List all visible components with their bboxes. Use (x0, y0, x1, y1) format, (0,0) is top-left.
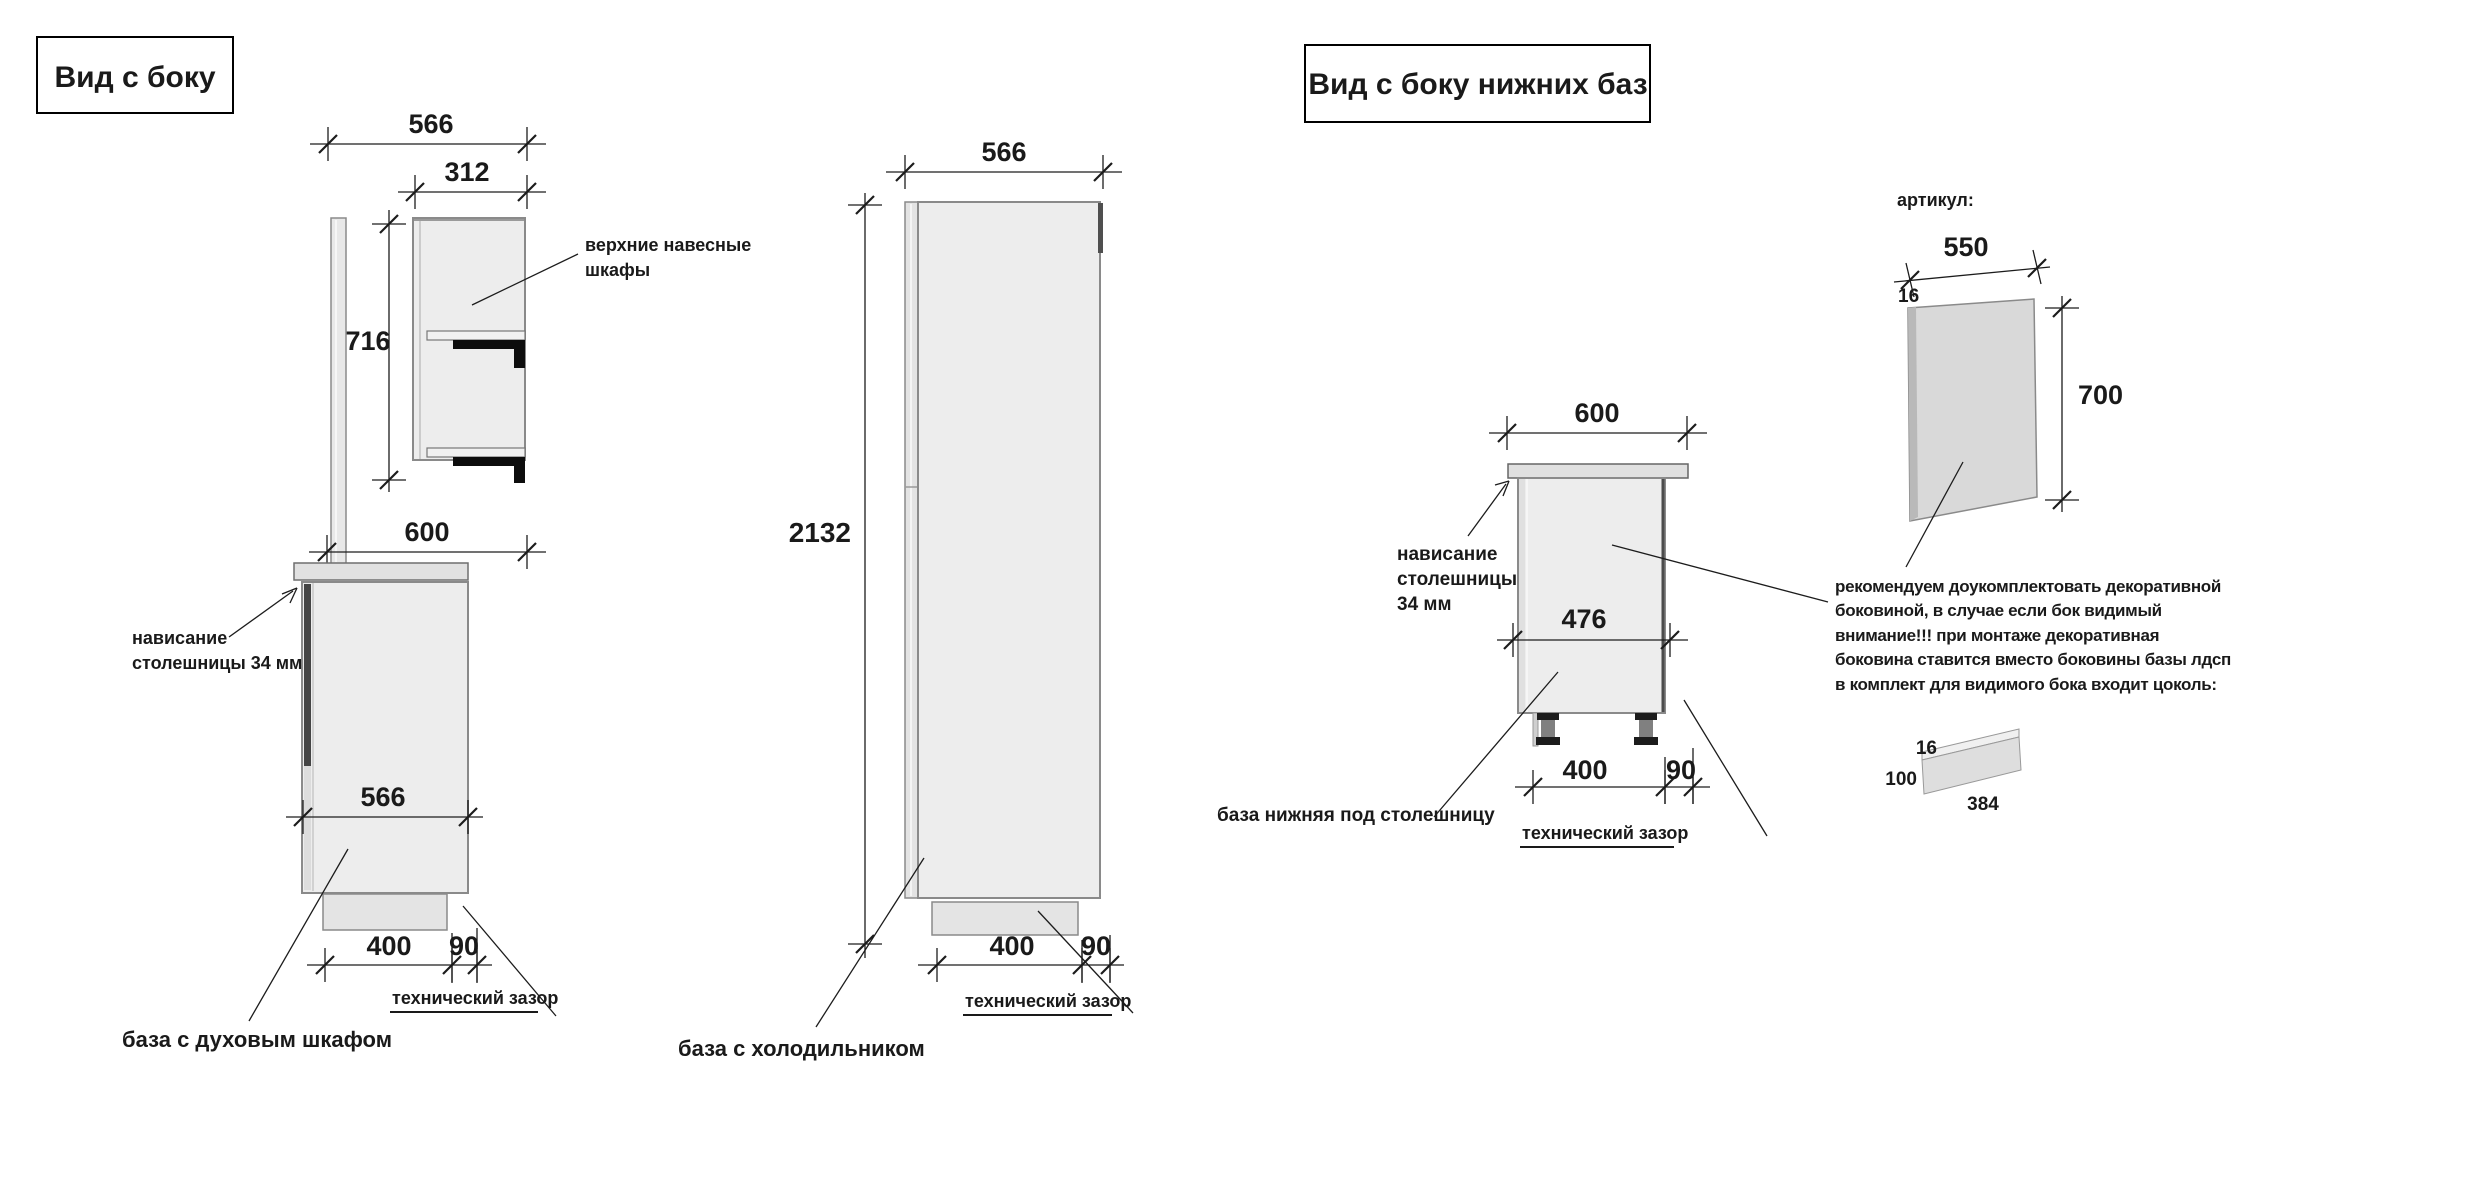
left-plinth (323, 894, 447, 930)
middle-caption: база с холодильником (678, 1036, 925, 1061)
left-wall-shelf-1 (427, 331, 525, 340)
left-dim-countertop-value: 600 (404, 517, 449, 547)
note-line2: боковиной, в случае если бок видимый (1835, 601, 2162, 620)
right-cabinet (1518, 478, 1665, 713)
plinth-dim-height-value: 100 (1885, 769, 1917, 790)
left-dim-upper-depth: 312 (398, 157, 546, 209)
right-tech-gap-text: технический зазор (1522, 823, 1688, 843)
right-view-title: Вид с боку нижних баз (1308, 68, 1647, 101)
right-dim-plinth-value: 400 (1562, 755, 1607, 785)
right-dim-inner-depth-value: 476 (1561, 604, 1606, 634)
right-overhang-line3: 34 мм (1397, 594, 1452, 615)
left-overhang-line2: столешницы 34 мм (132, 653, 302, 673)
left-base-cabinet (302, 582, 468, 893)
middle-dim-top-width: 566 (886, 137, 1122, 189)
middle-dim-top-width-value: 566 (981, 137, 1026, 167)
left-wall-cabinets-label-line1: верхние навесные (585, 235, 751, 255)
right-caption-group: база нижняя под столешницу (1217, 672, 1558, 826)
middle-cabinet (905, 202, 1103, 898)
left-shelf-bracket-1 (453, 340, 525, 349)
left-dim-upper-depth-value: 312 (444, 157, 489, 187)
panel-dim-width-value: 550 (1943, 232, 1988, 262)
left-caption: база с духовым шкафом (122, 1027, 392, 1052)
middle-dim-plinth-value: 400 (989, 931, 1034, 961)
sku-label: артикул: (1897, 190, 1974, 210)
left-view-title: Вид с боку (54, 61, 215, 94)
plinth-dim-thickness-value: 16 (1916, 738, 1937, 759)
panel-dim-height-value: 700 (2078, 380, 2123, 410)
left-dim-gap-value: 90 (449, 931, 479, 961)
left-dim-top-width: 566 (310, 109, 546, 161)
right-countertop (1508, 464, 1688, 478)
left-dim-plinth-value: 400 (366, 931, 411, 961)
middle-dim-gap-value: 90 (1081, 931, 1111, 961)
right-caption: база нижняя под столешницу (1217, 805, 1495, 826)
right-cabinet-legs (1533, 713, 1658, 746)
right-overhang-line1: нависание (1397, 544, 1498, 565)
middle-dim-plinth-gap: 400 90 (918, 931, 1124, 983)
left-dim-upper-height-value: 716 (345, 326, 390, 356)
left-wall-cabinets-label-line2: шкафы (585, 260, 650, 280)
plinth-dim-length-value: 384 (1967, 794, 1999, 815)
panel-dim-height: 700 (2045, 296, 2123, 512)
right-overhang-line2: столешницы (1397, 569, 1517, 590)
left-dim-base-depth-value: 566 (360, 782, 405, 812)
middle-dim-height: 2132 (789, 193, 882, 958)
left-tall-panel (331, 218, 346, 564)
right-dim-top-width-value: 600 (1574, 398, 1619, 428)
left-dim-upper-height: 716 (345, 210, 406, 492)
plinth-detail: 16 100 384 (1885, 729, 2021, 815)
warning-line1: внимание!!! при монтаже декоративная (1835, 626, 2159, 645)
decorative-side-panel (1908, 299, 2037, 521)
right-dim-gap-value: 90 (1666, 755, 1696, 785)
right-view-title-box: Вид с боку нижних баз (1305, 45, 1650, 122)
note-line3: в комплект для видимого бока входит цоко… (1835, 675, 2217, 694)
right-view: Вид с боку нижних баз 600 476 (1217, 45, 1828, 847)
note-line1: рекомендуем доукомплектовать декоративно… (1835, 577, 2221, 596)
left-tech-gap-text: технический зазор (392, 988, 558, 1008)
drawing-canvas: Вид с боку 566 312 (0, 0, 2484, 1198)
drawing-page: Вид с боку 566 312 (0, 0, 2484, 1198)
panel-note-block: рекомендуем доукомплектовать декоративно… (1835, 577, 2231, 694)
left-view-title-box: Вид с боку (37, 37, 233, 113)
side-panel-detail: артикул: 550 16 700 рекомендуем доукомпл… (1835, 190, 2231, 815)
left-wall-shelf-2 (427, 448, 525, 457)
panel-dim-thickness-value: 16 (1898, 286, 1919, 307)
left-dim-top-width-value: 566 (408, 109, 453, 139)
middle-caption-group: база с холодильником (678, 858, 925, 1061)
left-countertop (294, 563, 468, 580)
left-overhang-label: нависание столешницы 34 мм (132, 588, 302, 673)
warning-line2: боковина ставится вместо боковины базы л… (1835, 650, 2231, 669)
left-shelf-bracket-2 (453, 457, 525, 466)
right-dim-plinth-gap: 400 90 (1515, 748, 1710, 804)
left-dim-plinth-gap: 400 90 (307, 928, 492, 983)
right-overhang-label: нависание столешницы 34 мм (1397, 481, 1517, 615)
right-dim-top-width: 600 (1489, 398, 1707, 450)
left-overhang-line1: нависание (132, 628, 227, 648)
middle-dim-height-value: 2132 (789, 517, 851, 548)
middle-view: 566 2132 400 90 т (678, 137, 1133, 1061)
middle-tech-gap-text: технический зазор (965, 991, 1131, 1011)
left-view: Вид с боку 566 312 (37, 37, 751, 1052)
left-wall-cabinet (413, 218, 525, 483)
